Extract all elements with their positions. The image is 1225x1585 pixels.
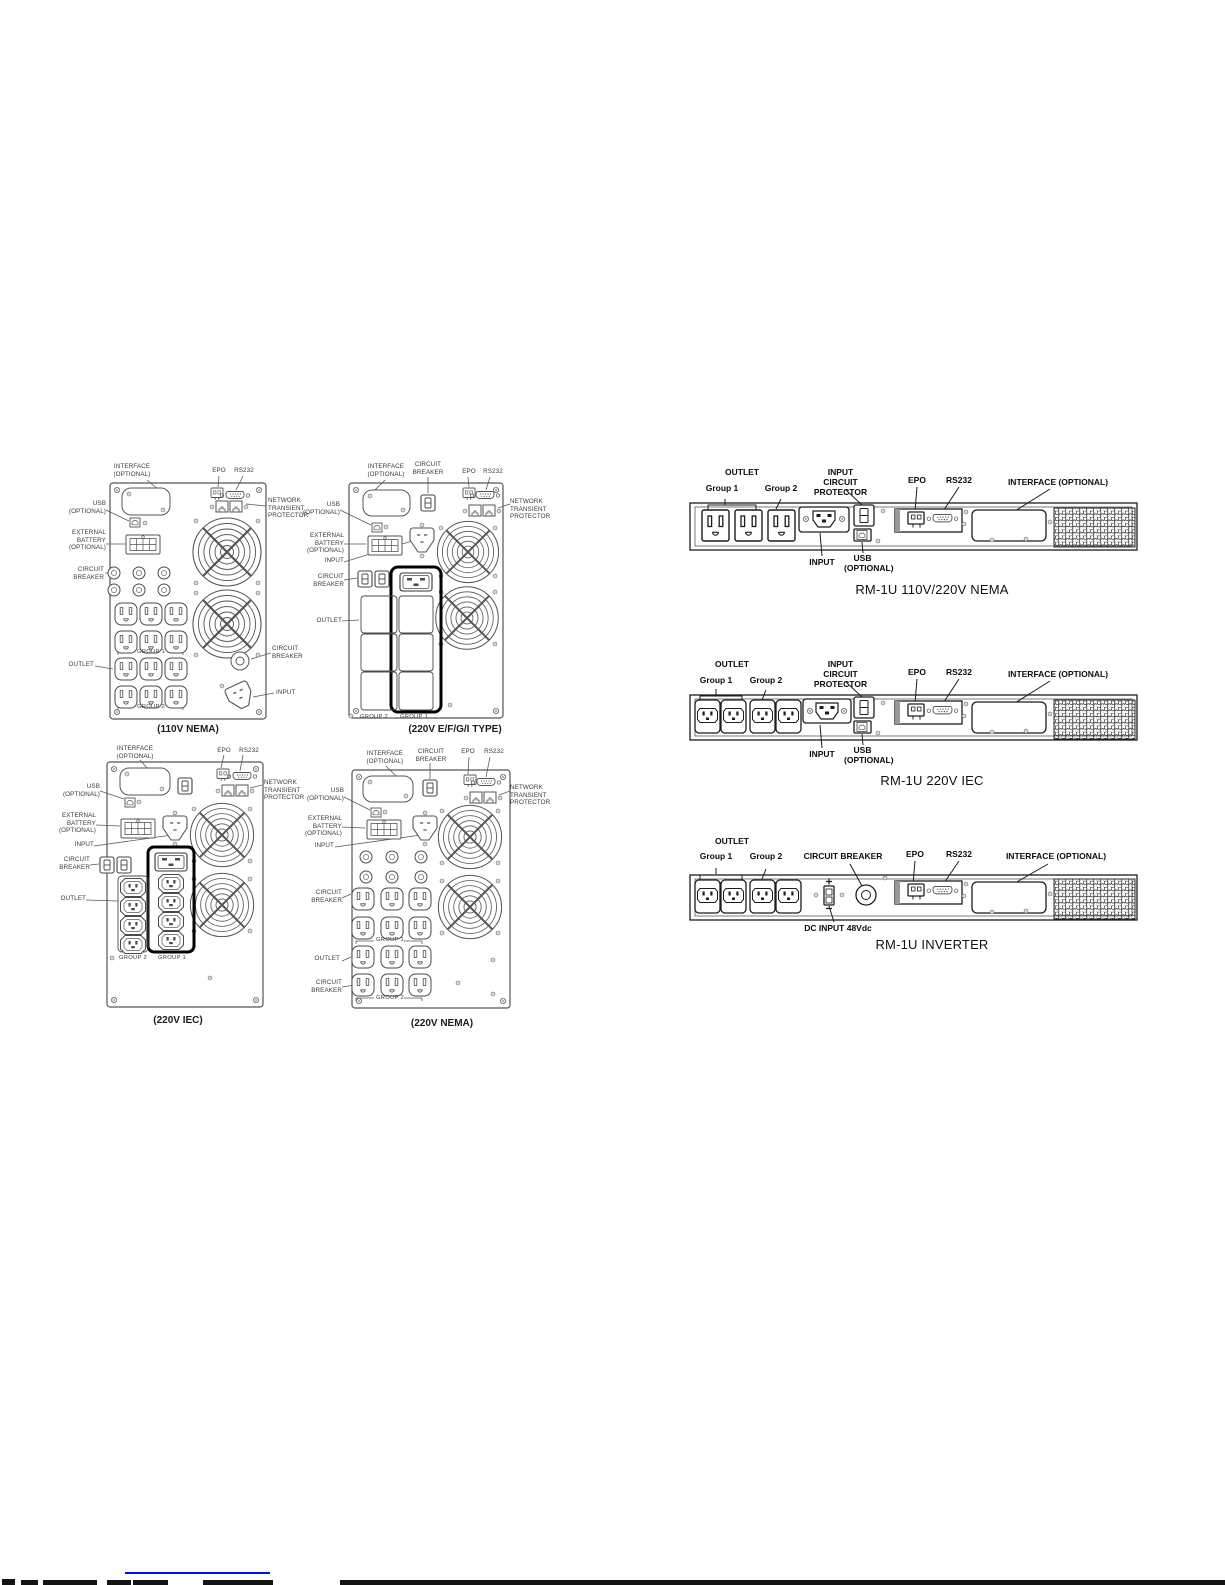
label-usb-optional: USB (OPTIONAL): [58, 783, 100, 798]
label-input: INPUT: [807, 557, 837, 567]
label-group2: Group 2: [743, 851, 789, 861]
label-usb-optional: USB (OPTIONAL): [302, 787, 344, 802]
external-battery-connector: [121, 819, 155, 838]
interface-slot: [972, 510, 1046, 542]
label-group1: GROUP 1: [155, 955, 189, 961]
outlet-group1: [695, 880, 746, 913]
vent-grille: [1054, 879, 1135, 919]
footer-text-fragment: [133, 1580, 168, 1585]
vent-grille: [1054, 700, 1135, 739]
diagram-tower-220v-iec: INTERFACE (OPTIONAL) EPO RS232 NETWORK T…: [50, 735, 320, 1035]
footer-text-fragment: [107, 1580, 131, 1585]
label-interface-optional: INTERFACE (OPTIONAL): [106, 745, 164, 760]
caption-220v-nema: (220V NEMA): [352, 1018, 532, 1030]
label-circuit-breaker: CIRCUIT BREAKER: [300, 889, 342, 904]
label-epo: EPO: [903, 475, 931, 485]
tower-220v-nema-art: [300, 735, 590, 1035]
epo-port: [217, 769, 229, 781]
label-outlet: OUTLET: [717, 467, 767, 477]
label-usb-optional: USB (OPTIONAL): [844, 553, 881, 573]
interface-slot: [972, 702, 1046, 734]
fan: [438, 875, 501, 938]
label-interface-optional: INTERFACE (OPTIONAL): [1000, 851, 1112, 861]
label-group2: GROUP 2: [375, 995, 405, 1001]
label-group1: GROUP 1: [375, 937, 405, 943]
label-external-battery: EXTERNAL BATTERY (OPTIONAL): [300, 532, 344, 555]
caption-rm1u-inverter: RM-1U INVERTER: [787, 937, 1077, 952]
interface-slot: [972, 882, 1046, 914]
label-dc-input-48vdc: DC INPUT 48Vdc: [788, 923, 888, 933]
usb-port: [854, 529, 871, 541]
label-rs232: RS232: [941, 667, 977, 677]
label-outlet: OUTLET: [707, 659, 757, 669]
input-connector: [799, 507, 849, 532]
label-rs232: RS232: [480, 468, 506, 476]
label-interface-optional: INTERFACE (OPTIONAL): [356, 750, 414, 765]
label-group1: Group 1: [693, 675, 739, 685]
label-outlet: OUTLET: [50, 895, 86, 903]
label-epo: EPO: [213, 747, 235, 755]
label-rs232: RS232: [941, 475, 977, 485]
label-circuit-breaker: CIRCUIT BREAKER: [62, 566, 104, 581]
usb-port: [854, 721, 871, 733]
outlet-group2: [750, 880, 801, 913]
label-group2: Group 2: [743, 675, 789, 685]
label-network-transient-protector: NETWORK TRANSIENT PROTECTOR: [510, 498, 560, 521]
label-epo: EPO: [903, 667, 931, 677]
label-input-circuit-protector: INPUT CIRCUIT PROTECTOR: [798, 467, 883, 497]
caption-rm1u-iec: RM-1U 220V IEC: [787, 773, 1077, 788]
label-epo: EPO: [901, 849, 929, 859]
label-epo: EPO: [458, 468, 480, 476]
interface-slot: [122, 488, 170, 515]
fan: [193, 518, 261, 586]
tower-220v-efgi-art: [300, 440, 590, 740]
label-input-circuit-protector: INPUT CIRCUIT PROTECTOR: [798, 659, 883, 689]
external-battery-connector: [367, 820, 401, 839]
fan: [437, 521, 498, 582]
footer-text-fragment: [2, 1579, 15, 1585]
label-rs232: RS232: [236, 747, 262, 755]
caption-rm1u-nema: RM-1U 110V/220V NEMA: [787, 582, 1077, 597]
label-input: INPUT: [62, 841, 94, 849]
diagram-tower-110v-nema: INTERFACE (OPTIONAL) EPO RS232 NETWORK T…: [50, 440, 320, 740]
label-usb-optional: USB (OPTIONAL): [844, 745, 881, 765]
label-interface-optional: INTERFACE (OPTIONAL): [358, 463, 414, 478]
label-external-battery: EXTERNAL BATTERY (OPTIONAL): [300, 815, 342, 838]
diagram-tower-220v-nema: INTERFACE (OPTIONAL) CIRCUIT BREAKER EPO…: [300, 735, 590, 1035]
input-circuit-breaker: [178, 778, 192, 794]
input-circuit-breaker: [423, 780, 437, 796]
output-circuit-breaker: [231, 652, 249, 670]
vent-grille: [1054, 508, 1135, 547]
circuit-breaker: [856, 885, 876, 905]
label-epo: EPO: [208, 467, 230, 475]
external-battery-connector: [368, 536, 402, 555]
label-outlet: OUTLET: [54, 661, 94, 669]
label-group1: GROUP 1: [396, 714, 432, 720]
fan: [193, 590, 261, 658]
fan: [438, 805, 501, 868]
fan: [190, 803, 253, 866]
label-external-battery: EXTERNAL BATTERY (OPTIONAL): [60, 529, 106, 552]
label-group2: GROUP 2: [356, 714, 392, 720]
footer-text-fragment: [428, 1580, 1225, 1585]
fan: [436, 587, 499, 650]
diagram-rm1u-inverter: OUTLET Group 1 Group 2 CIRCUIT BREAKER E…: [670, 825, 1160, 960]
outlet-group1: [695, 700, 746, 733]
label-outlet: OUTLET: [302, 617, 342, 625]
epo-rs232-plate: [895, 881, 962, 904]
label-circuit-breaker-top: CIRCUIT BREAKER: [408, 461, 448, 476]
caption-220v-iec: (220V IEC): [88, 1015, 268, 1027]
label-outlet: OUTLET: [302, 955, 340, 963]
interface-slot: [120, 768, 170, 795]
label-interface-optional: INTERFACE (OPTIONAL): [102, 463, 162, 478]
interface-slot: [363, 490, 410, 516]
input-circuit-protector: [854, 505, 874, 526]
outlet-group2: [768, 510, 795, 541]
label-circuit-breaker-bottom: CIRCUIT BREAKER: [300, 979, 342, 994]
label-circuit-breaker-top: CIRCUIT BREAKER: [410, 748, 452, 763]
label-input: INPUT: [302, 842, 334, 850]
label-usb-optional: USB (OPTIONAL): [66, 500, 106, 515]
label-input: INPUT: [308, 557, 344, 565]
label-group1: Group 1: [699, 483, 745, 493]
label-rs232: RS232: [231, 467, 257, 475]
diagram-tower-220v-efgi: INTERFACE (OPTIONAL) CIRCUIT BREAKER EPO…: [300, 440, 590, 740]
diagram-rm1u-nema: OUTLET Group 1 Group 2 INPUT CIRCUIT PRO…: [670, 455, 1160, 605]
epo-rs232-plate: [895, 509, 962, 532]
label-group1: Group 1: [693, 851, 739, 861]
epo-rs232-plate: [895, 701, 962, 724]
label-interface-optional: INTERFACE (OPTIONAL): [1002, 669, 1114, 679]
label-epo: EPO: [457, 748, 479, 756]
label-group2: GROUP 2: [117, 955, 149, 961]
label-group2: GROUP 2: [136, 704, 166, 710]
footer-text-fragment: [203, 1580, 273, 1585]
interface-slot: [363, 776, 413, 802]
label-network-transient-protector: NETWORK TRANSIENT PROTECTOR: [510, 784, 560, 807]
label-interface-optional: INTERFACE (OPTIONAL): [1002, 477, 1114, 487]
external-battery-connector: [126, 535, 160, 554]
fan: [190, 873, 253, 936]
label-group1: GROUP 1: [136, 649, 166, 655]
label-circuit-breaker: CIRCUIT BREAKER: [50, 856, 90, 871]
label-outlet: OUTLET: [707, 836, 757, 846]
manual-page: INTERFACE (OPTIONAL) EPO RS232 NETWORK T…: [0, 0, 1225, 1585]
input-circuit-protector: [854, 697, 874, 718]
label-rs232: RS232: [941, 849, 977, 859]
label-usb-optional: USB (OPTIONAL): [300, 501, 340, 516]
footer-text-fragment: [340, 1580, 428, 1585]
label-circuit-breaker: CIRCUIT BREAKER: [300, 573, 344, 588]
label-rs232: RS232: [481, 748, 507, 756]
diagram-rm1u-iec: OUTLET Group 1 Group 2 INPUT CIRCUIT PRO…: [670, 645, 1160, 793]
label-circuit-breaker: CIRCUIT BREAKER: [793, 851, 893, 861]
outlet-group2: [750, 700, 801, 733]
input-circuit-breaker: [421, 495, 435, 511]
footer-text-fragment: [43, 1580, 97, 1585]
label-external-battery: EXTERNAL BATTERY (OPTIONAL): [52, 812, 96, 835]
label-input: INPUT: [807, 749, 837, 759]
footer-link-underline[interactable]: [125, 1572, 270, 1574]
input-connector: [803, 699, 851, 723]
footer-text-fragment: [21, 1580, 38, 1585]
